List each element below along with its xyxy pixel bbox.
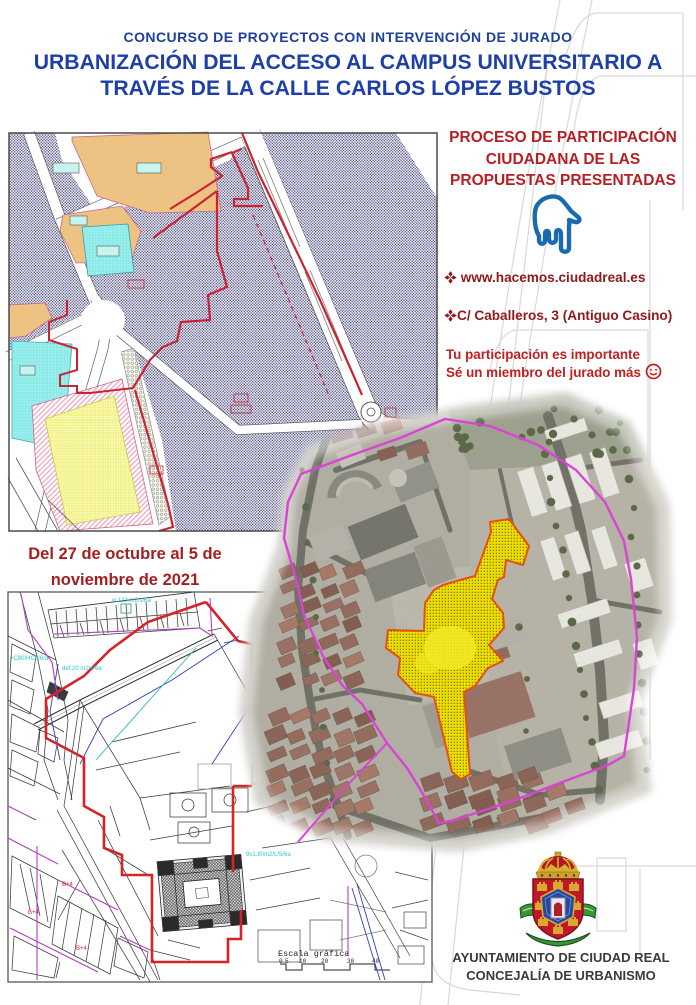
- svg-text:B+4: B+4: [28, 910, 40, 916]
- svg-text:B+4: B+4: [62, 882, 74, 888]
- svg-text:+C80/HC5/6/a: +C80/HC5/6/a: [10, 656, 49, 662]
- svg-text:w.123 m2/s/6a: w.123 m2/s/6a: [111, 598, 151, 604]
- svg-text:Escala gráfica: Escala gráfica: [278, 949, 349, 959]
- svg-text:def.20 m2/s/6a: def.20 m2/s/6a: [62, 666, 102, 672]
- svg-text:B+4: B+4: [76, 946, 88, 952]
